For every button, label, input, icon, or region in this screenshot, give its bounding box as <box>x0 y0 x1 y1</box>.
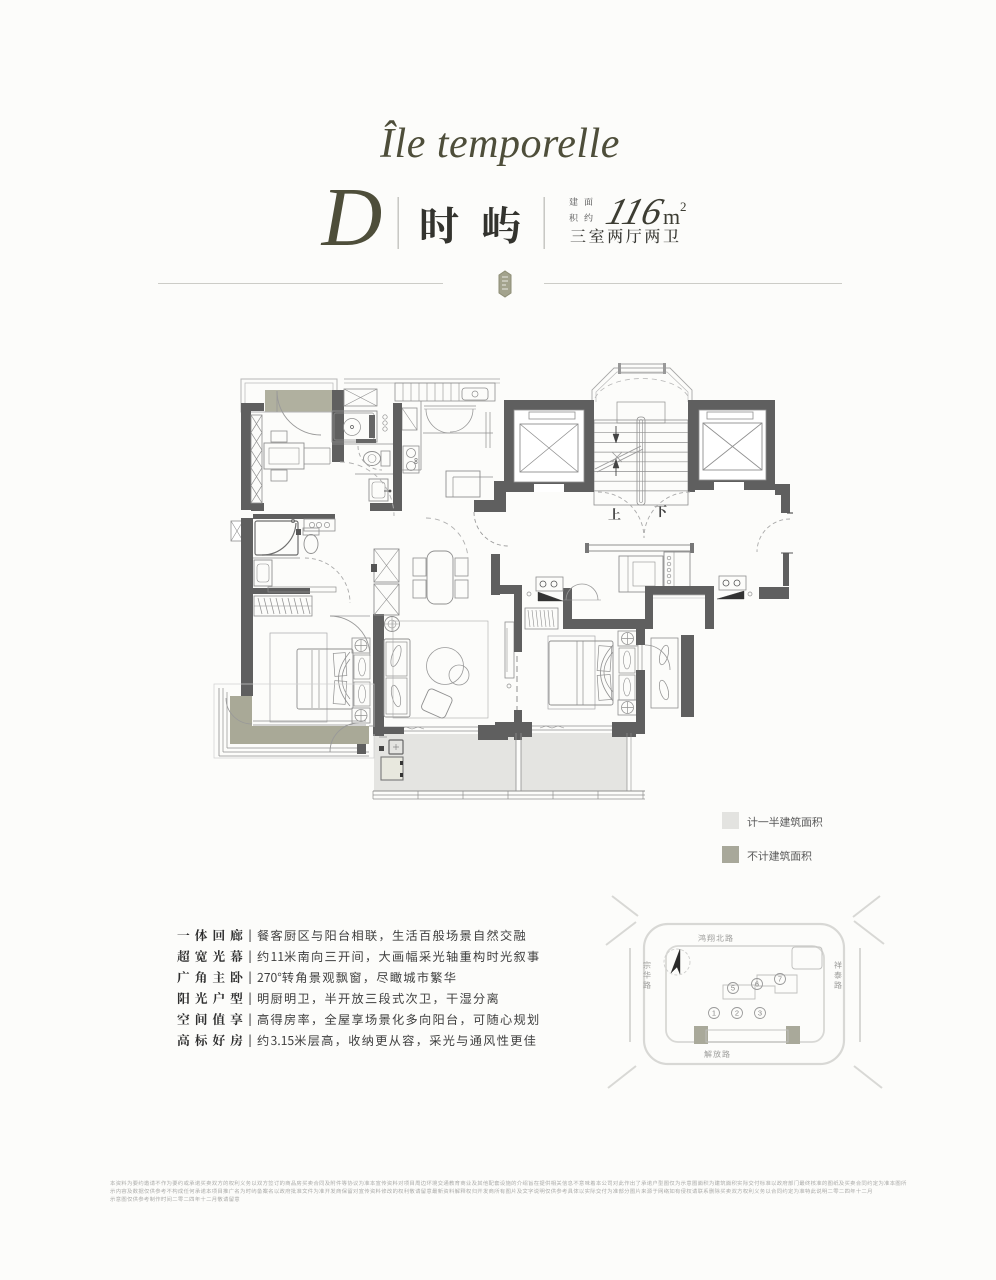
svg-text:7: 7 <box>778 975 782 984</box>
svg-text:3: 3 <box>758 1009 762 1018</box>
svg-text:2: 2 <box>735 1009 739 1018</box>
svg-text:Île temporelle: Île temporelle <box>379 120 620 167</box>
svg-text:5: 5 <box>731 984 735 993</box>
svg-text:2: 2 <box>680 199 687 214</box>
svg-text:m: m <box>663 204 680 229</box>
svg-text:D: D <box>321 171 383 264</box>
svg-text:6: 6 <box>755 980 759 989</box>
svg-text:1: 1 <box>712 1009 716 1018</box>
